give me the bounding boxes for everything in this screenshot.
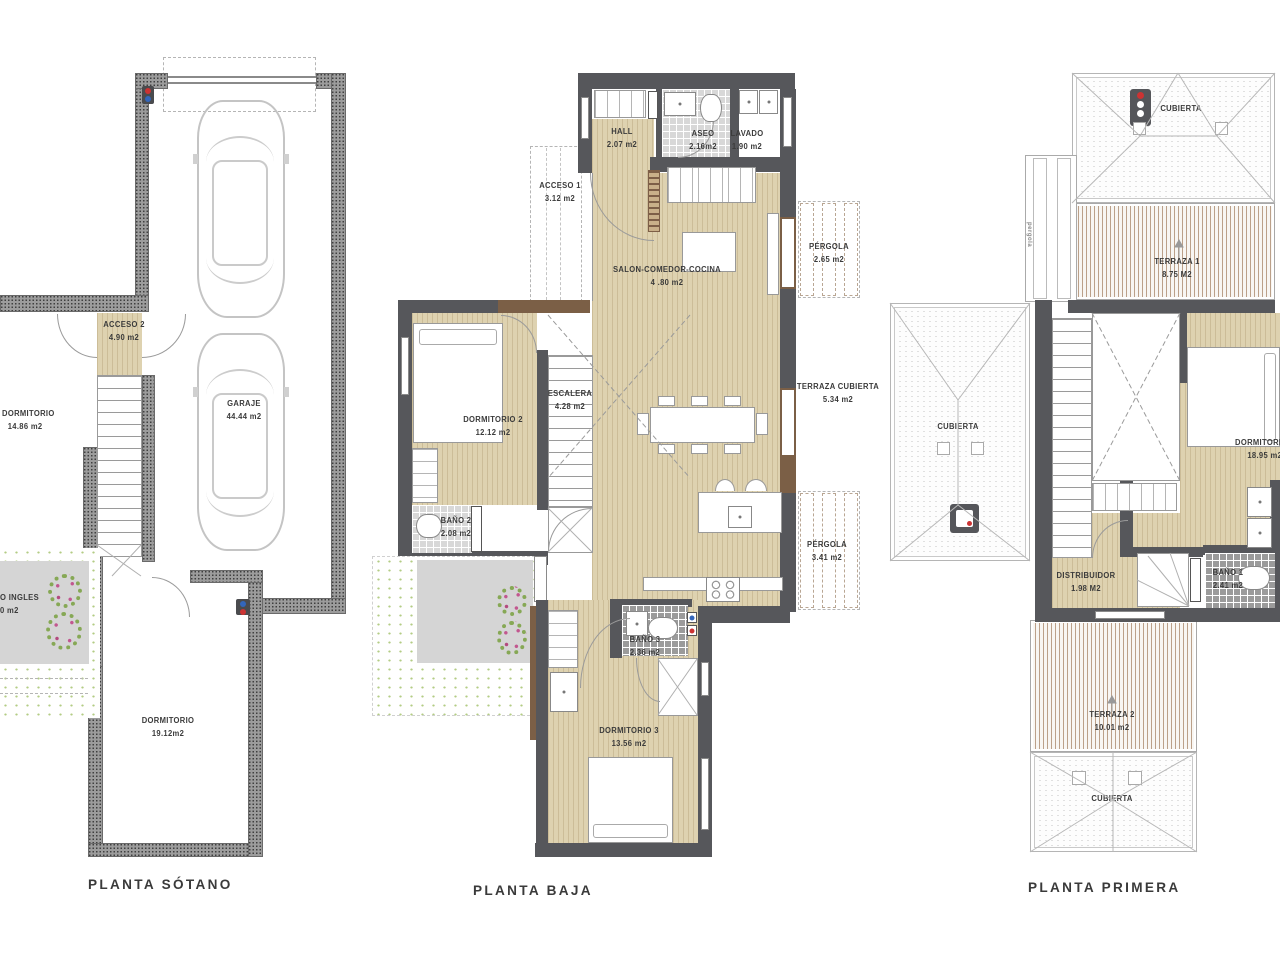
chimney (950, 504, 979, 533)
void-space (1092, 313, 1180, 481)
pergola-slat (1033, 158, 1047, 299)
terraza1-deck (1073, 203, 1275, 300)
room-label-distribuidor: DISTRIBUIDOR 1.98 M2 (1057, 570, 1116, 595)
winder-stairs (1137, 553, 1189, 607)
roof-vent (1128, 771, 1142, 785)
wall-segment (1068, 300, 1275, 313)
room-label-cubierta-top: CUBIERTA (1160, 103, 1201, 116)
room-label-terraza2: TERRAZA 2 10.01 m2 (1089, 709, 1134, 734)
double-sink (1247, 518, 1272, 548)
room-label-pergola-side: pergola (1026, 222, 1032, 247)
chimney (1130, 89, 1151, 126)
utility-symbol (1190, 558, 1201, 602)
room-label-bano1: BAÑO 1 2.41 m2 (1213, 567, 1244, 592)
room-label-terraza1: TERRAZA 1 8.75 M2 (1154, 256, 1199, 281)
caption-planta-primera: PLANTA PRIMERA (1028, 879, 1181, 895)
roof-top (1072, 73, 1275, 203)
floor-plan-sheet: DORMITORIO 14.86 m2 ACCESO 2 4.90 m2 GAR… (0, 0, 1280, 960)
upper-stairs (1052, 318, 1092, 558)
room-label-dormitorio-primera: DORMITORIO 18.95 m2 (1235, 437, 1280, 462)
room-label-cubierta-bottom: CUBIERTA (1091, 793, 1132, 806)
room-label-cubierta-left: CUBIERTA (937, 421, 978, 434)
roof-vent (1072, 771, 1086, 785)
roof-vent (1133, 122, 1146, 135)
plan-primera: pergola (0, 0, 1280, 960)
double-sink (1247, 487, 1272, 517)
wall-segment (1035, 300, 1052, 608)
closet-band (1092, 483, 1177, 511)
roof-vent (971, 442, 984, 455)
pergola-slat (1057, 158, 1071, 299)
window (1095, 611, 1165, 619)
roof-vent (1215, 122, 1228, 135)
roof-vent (937, 442, 950, 455)
bed-principal (1187, 347, 1280, 447)
